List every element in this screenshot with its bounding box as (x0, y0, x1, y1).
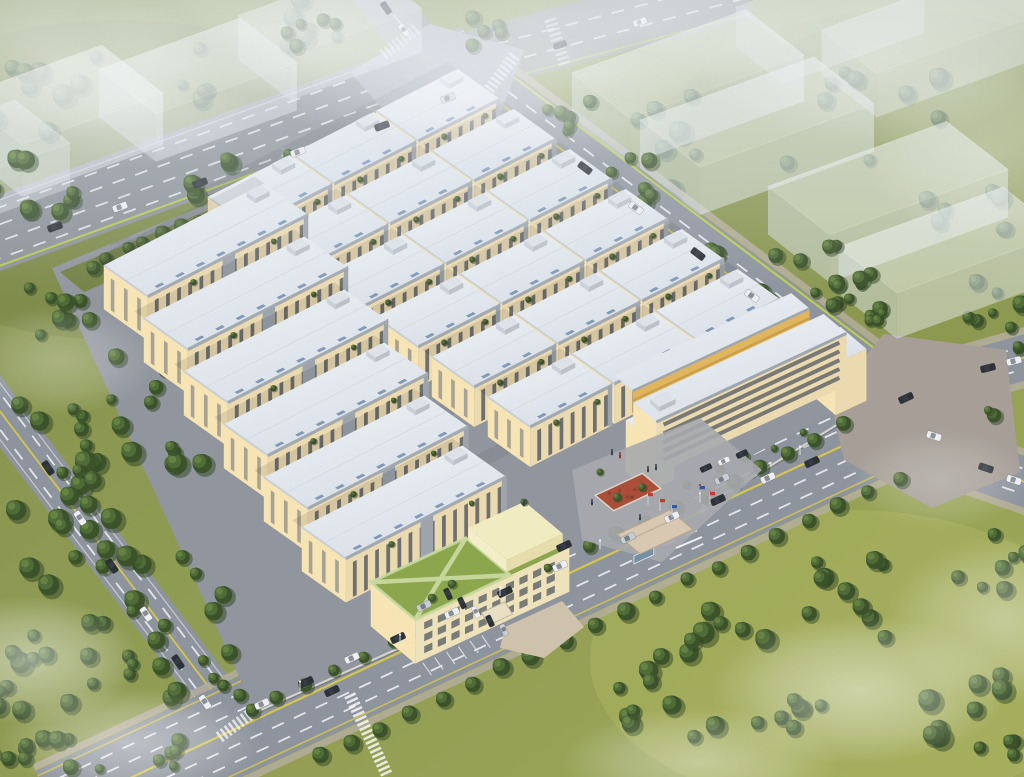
industrial-park-aerial-rendering (0, 0, 1024, 777)
aerial-rendering-page (0, 0, 1024, 777)
light-veil (0, 0, 1024, 777)
